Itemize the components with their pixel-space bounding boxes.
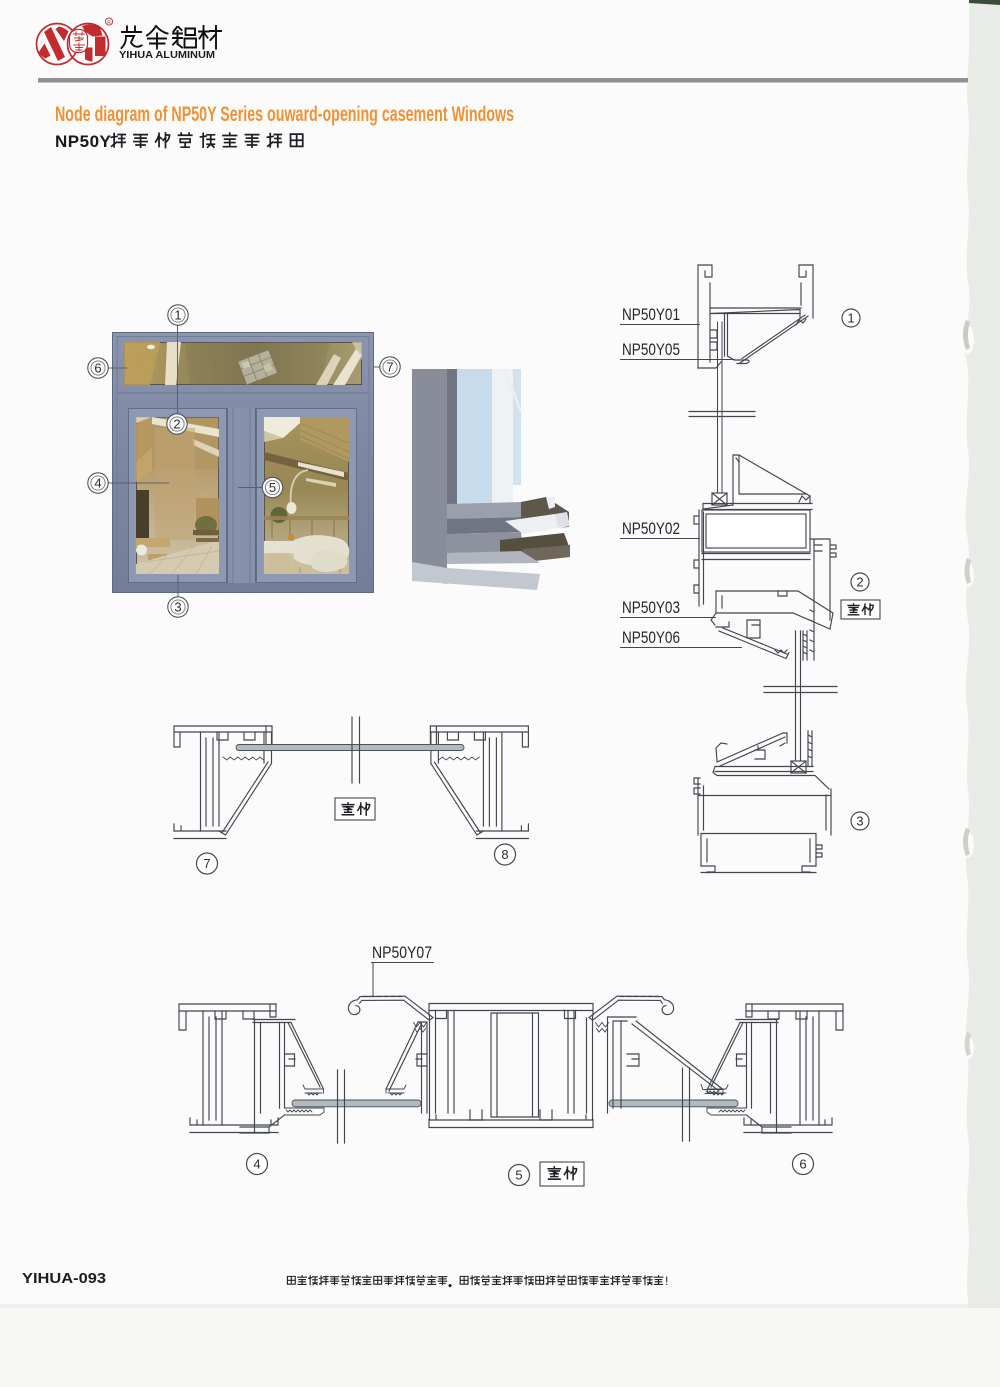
svg-text:1: 1 xyxy=(174,308,181,323)
svg-text:3: 3 xyxy=(174,600,181,615)
svg-text:NP50Y06: NP50Y06 xyxy=(622,628,680,647)
svg-text:NP50Y: NP50Y xyxy=(55,132,112,151)
svg-text:NP50Y05: NP50Y05 xyxy=(622,340,680,359)
svg-text:5: 5 xyxy=(515,1168,522,1183)
svg-text:3: 3 xyxy=(856,814,863,829)
svg-text:Node diagram of NP50Y Series o: Node diagram of NP50Y Series ouward-open… xyxy=(55,102,514,126)
svg-text:NP50Y07: NP50Y07 xyxy=(372,943,432,962)
svg-text:8: 8 xyxy=(501,847,508,862)
svg-text:1: 1 xyxy=(847,311,854,326)
svg-text:NP50Y01: NP50Y01 xyxy=(622,305,680,324)
svg-text:YIHUA-093: YIHUA-093 xyxy=(22,1270,106,1287)
svg-text:7: 7 xyxy=(386,360,393,375)
svg-text:4: 4 xyxy=(253,1157,260,1172)
svg-text:R: R xyxy=(107,20,111,26)
svg-text:YIHUA ALUMINUM: YIHUA ALUMINUM xyxy=(119,49,215,61)
svg-text:2: 2 xyxy=(856,575,863,590)
svg-text:6: 6 xyxy=(799,1157,806,1172)
svg-text:!: ! xyxy=(665,1274,668,1288)
svg-text:7: 7 xyxy=(203,856,210,871)
svg-text:4: 4 xyxy=(94,476,101,491)
svg-text:6: 6 xyxy=(94,361,101,376)
svg-text:NP50Y02: NP50Y02 xyxy=(622,519,680,538)
svg-text:NP50Y03: NP50Y03 xyxy=(622,598,680,617)
